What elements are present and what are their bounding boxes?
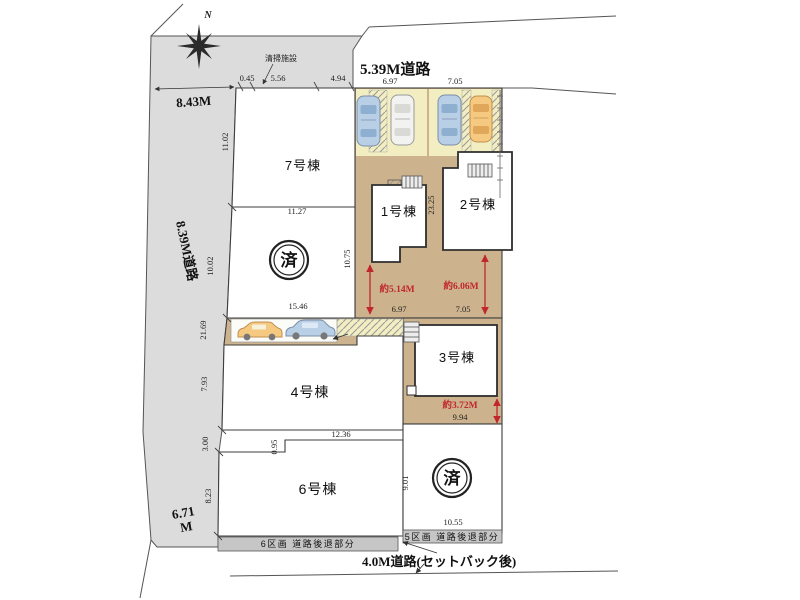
dim-lot2-bottom: 7.05 <box>456 304 471 314</box>
svg-text:済: 済 <box>281 250 299 270</box>
boundary-line-topleft <box>151 4 183 36</box>
road-bottom-label: 4.0M道路(セットバック後) <box>362 554 516 569</box>
dim-1236: 12.36 <box>331 429 350 439</box>
dim-793: 7.93 <box>199 377 209 392</box>
building-6-label: 6号棟 <box>299 481 338 497</box>
red-dim-lot2: 約6.06M <box>443 280 478 292</box>
svg-text:済: 済 <box>444 468 462 488</box>
site-plan-page: N 済 済 約5.14M 約6.06M 約3.72M 6区画 道路後退部分 5区… <box>0 0 800 600</box>
dim-lot2-top: 7.05 <box>448 76 463 86</box>
svg-text:5区画 道路後退部分: 5区画 道路後退部分 <box>405 531 500 542</box>
sold-stamp-1: 済 <box>270 241 308 279</box>
hatch-walkway <box>327 319 403 336</box>
road-top-lower-edge-b <box>532 88 616 94</box>
site-plan-svg: N 済 済 約5.14M 約6.06M 約3.72M 6区画 道路後退部分 5区… <box>0 0 800 600</box>
dim-top-556: 5.56 <box>271 73 286 83</box>
setback-band-left: 6区画 道路後退部分 <box>218 537 398 551</box>
sold-stamp-2: 済 <box>433 459 471 497</box>
building-2-label: 2号棟 <box>460 197 496 212</box>
building-1-label: 1号棟 <box>381 204 417 219</box>
dim-994: 9.94 <box>453 412 469 422</box>
red-dim-lot3: 約3.72M <box>442 399 477 411</box>
dim-1102: 11.02 <box>220 133 230 152</box>
dim-2325: 23.25 <box>426 195 436 214</box>
steps-lot3 <box>404 322 419 342</box>
dim-lot1-top: 6.97 <box>383 76 398 86</box>
lot-7-area <box>232 88 355 207</box>
road-left-lower-label-2: M <box>179 518 194 535</box>
car-icon-blue-2 <box>438 95 461 145</box>
dim-1075: 10.75 <box>342 249 352 268</box>
car-icon-blue-1 <box>357 96 380 146</box>
steps-lot2 <box>468 164 492 177</box>
road-top-upper-edge-a <box>362 27 369 36</box>
dim-top-045: 0.45 <box>240 73 255 83</box>
building-4-label: 4号棟 <box>291 384 330 400</box>
dim-1546: 15.46 <box>288 301 307 311</box>
building-7-label: 7号棟 <box>285 158 321 173</box>
red-dim-lot1: 約5.14M <box>379 283 414 295</box>
dim-823: 8.23 <box>203 489 213 504</box>
car-icon-white-1 <box>391 95 414 145</box>
dim-300: 3.00 <box>200 437 210 452</box>
road-left-width-label: 8.43M <box>176 93 212 110</box>
dim-095: 0.95 <box>269 440 279 455</box>
band-leader-arrow <box>403 542 437 553</box>
svg-text:6区画 道路後退部分: 6区画 道路後退部分 <box>261 538 356 549</box>
north-label: N <box>203 10 212 21</box>
car-icon-orange-1 <box>470 96 492 142</box>
setback-band-right: 5区画 道路後退部分 <box>403 530 502 543</box>
building-3-label: 3号棟 <box>439 350 475 365</box>
dim-901: 9.01 <box>400 476 410 491</box>
dim-2169: 21.69 <box>198 320 208 339</box>
dim-1055: 10.55 <box>443 517 462 527</box>
dim-1002: 10.02 <box>205 256 215 275</box>
boundary-line-bottomleft <box>140 540 151 598</box>
dim-lot1-bottom: 6.97 <box>392 304 407 314</box>
facility-label: 清掃施設 <box>265 53 297 63</box>
dim-1127: 11.27 <box>288 206 307 216</box>
road-top-upper-edge-b <box>369 16 616 27</box>
building-3-porch <box>407 386 416 395</box>
road-bottom-line <box>230 571 618 576</box>
steps-lot1 <box>402 176 422 188</box>
lot-4-area <box>222 336 403 430</box>
dim-top-494: 4.94 <box>331 73 347 83</box>
